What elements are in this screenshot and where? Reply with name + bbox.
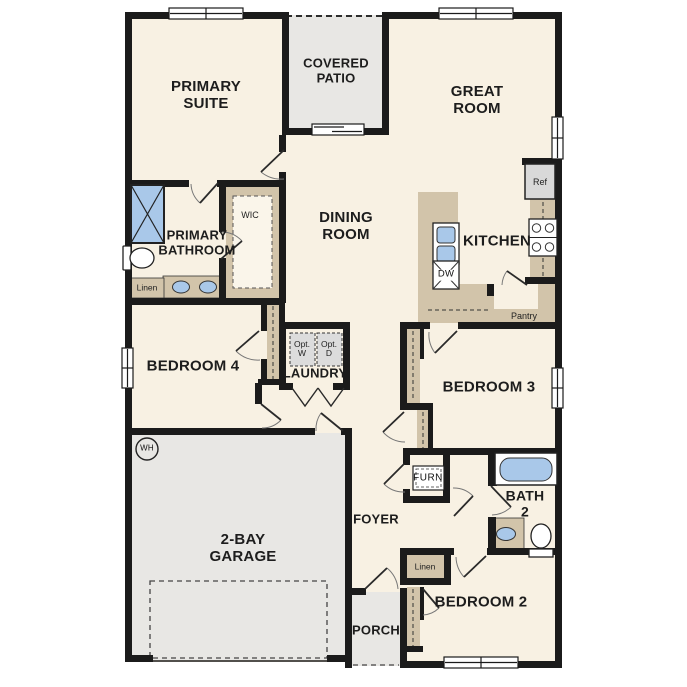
- room-label-laundry: LAUNDRY: [283, 367, 347, 382]
- room-label-primary-bathroom: PRIMARY BATHROOM: [158, 228, 235, 257]
- toilet-primary-icon: [123, 246, 154, 270]
- toilet-bath2-icon: [529, 524, 553, 557]
- label-wic: WIC: [241, 210, 259, 220]
- bath2-sink-icon: [497, 528, 516, 541]
- window-great-room-right: [552, 117, 563, 159]
- room-label-primary-suite: PRIMARY SUITE: [171, 79, 241, 113]
- window-great-room-top: [439, 8, 513, 19]
- window-bedroom4: [122, 348, 133, 388]
- floor-plan-drawing: [0, 0, 687, 687]
- label-opt-dryer: Opt. D: [321, 340, 337, 358]
- label-pantry: Pantry: [511, 311, 537, 321]
- room-label-dining-room: DINING ROOM: [319, 210, 373, 244]
- range-icon: [529, 219, 557, 256]
- window-primary-suite: [169, 8, 243, 19]
- kitchen-sink-icon: [433, 223, 459, 264]
- room-label-garage: 2-BAY GARAGE: [209, 532, 276, 566]
- room-label-bedroom3: BEDROOM 3: [443, 380, 536, 397]
- room-label-bath2: BATH 2: [506, 488, 545, 519]
- label-opt-washer: Opt. W: [294, 340, 310, 358]
- room-label-porch: PORCH: [352, 624, 400, 639]
- bathtub-icon: [495, 453, 557, 485]
- label-refrigerator: Ref: [533, 177, 547, 187]
- label-linen-hall: Linen: [415, 563, 436, 572]
- window-bedroom2: [444, 657, 518, 668]
- room-label-kitchen: KITCHEN: [463, 234, 531, 251]
- room-label-bedroom4: BEDROOM 4: [147, 359, 240, 376]
- room-label-great-room: GREAT ROOM: [451, 84, 503, 118]
- label-linen-bath: Linen: [137, 284, 158, 293]
- room-label-foyer: FOYER: [353, 513, 399, 528]
- room-label-covered-patio: COVERED PATIO: [303, 56, 369, 85]
- label-furnace: FURN: [413, 472, 443, 483]
- patio-slider-door: [312, 124, 364, 135]
- room-label-bedroom2: BEDROOM 2: [435, 595, 528, 612]
- label-water-heater: WH: [140, 445, 154, 454]
- label-dishwasher: DW: [437, 270, 455, 281]
- floor-plan: PRIMARY SUITE COVERED PATIO GREAT ROOM D…: [0, 0, 687, 687]
- window-bedroom3: [552, 368, 563, 408]
